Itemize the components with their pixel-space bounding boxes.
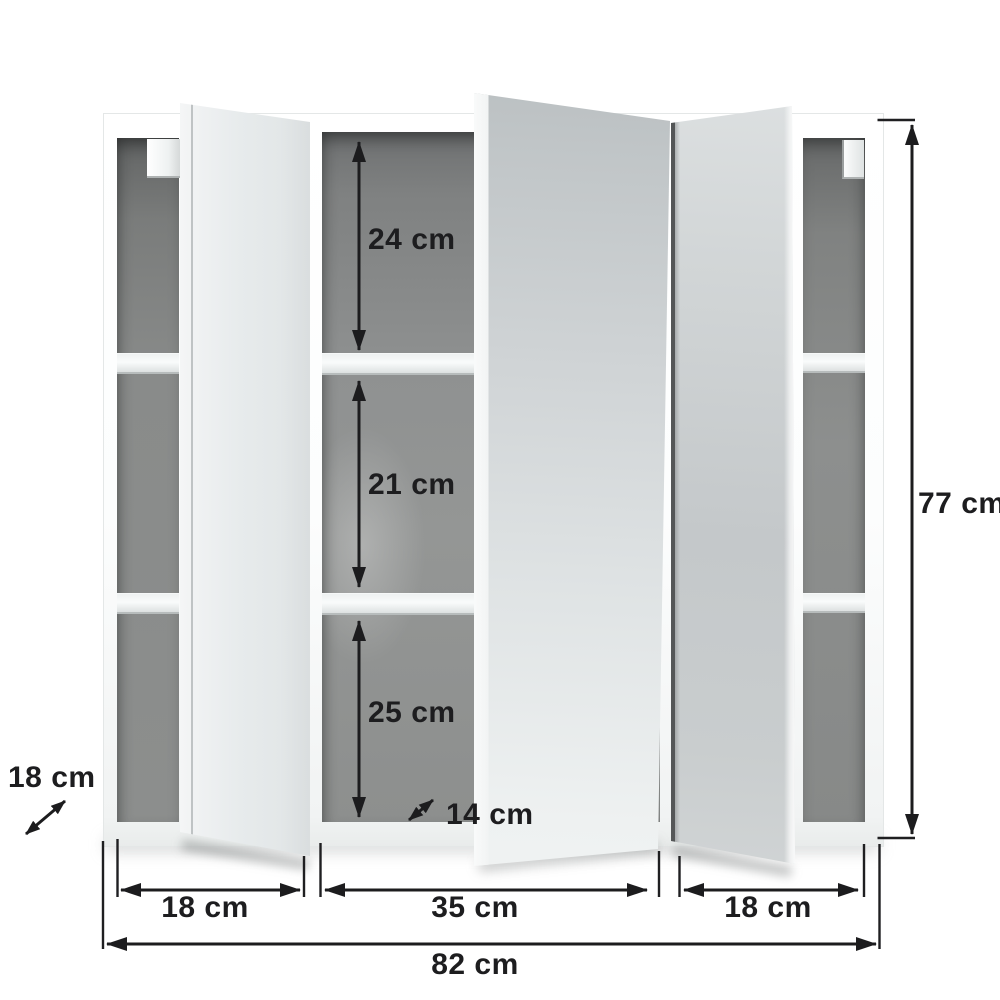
inner-middle-height-label: 21 cm bbox=[368, 470, 456, 500]
inner-bottom-height-label: 25 cm bbox=[368, 698, 456, 728]
middle-door-width-label: 35 cm bbox=[431, 893, 519, 923]
inner-top-height-label: 24 cm bbox=[368, 225, 456, 255]
inner-depth-dimension-line bbox=[409, 800, 433, 820]
dimension-lines bbox=[0, 0, 1000, 1000]
left-door-width-label: 18 cm bbox=[161, 893, 249, 923]
total-width-label: 82 cm bbox=[431, 950, 519, 980]
side-shelf-depth-label: 18 cm bbox=[8, 763, 96, 793]
inner-depth-label: 14 cm bbox=[446, 800, 534, 830]
side-depth-dimension-line bbox=[26, 801, 65, 834]
dimension-diagram: 24 cm 21 cm 25 cm 14 cm 18 cm 77 cm 18 c… bbox=[0, 0, 1000, 1000]
right-door-width-label: 18 cm bbox=[724, 893, 812, 923]
total-height-label: 77 cm bbox=[918, 489, 1000, 519]
